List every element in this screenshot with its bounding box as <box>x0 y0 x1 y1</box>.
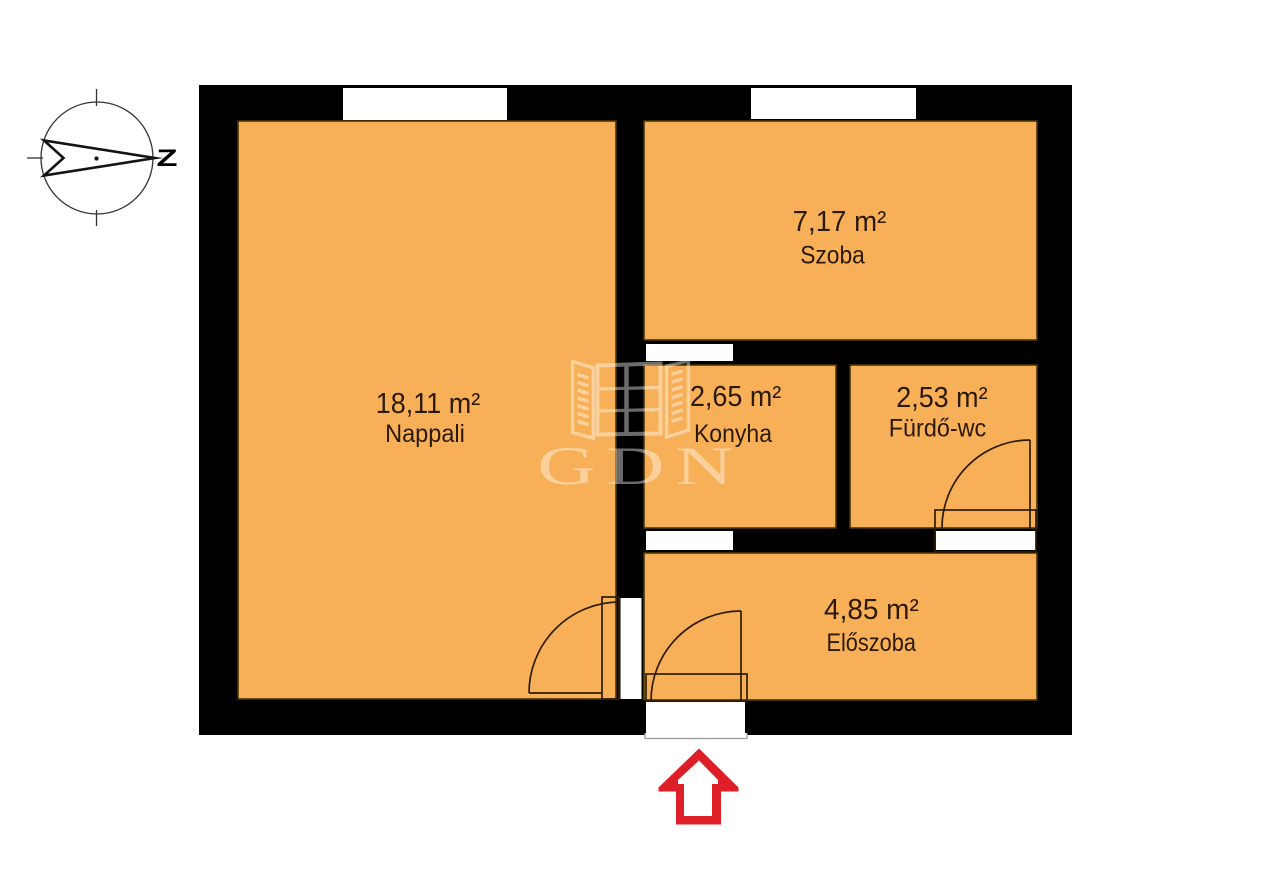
svg-text:Előszoba: Előszoba <box>826 629 916 657</box>
svg-text:4,85 m²: 4,85 m² <box>824 593 919 625</box>
svg-text:Szoba: Szoba <box>800 241 865 269</box>
svg-text:7,17 m²: 7,17 m² <box>793 205 887 237</box>
svg-text:Nappali: Nappali <box>385 420 465 448</box>
svg-text:2,53 m²: 2,53 m² <box>896 381 987 413</box>
svg-text:Z: Z <box>157 145 178 172</box>
svg-text:2,65 m²: 2,65 m² <box>690 380 781 412</box>
svg-text:Fürdő-wc: Fürdő-wc <box>889 415 987 443</box>
svg-text:18,11 m²: 18,11 m² <box>376 387 480 419</box>
svg-text:Konyha: Konyha <box>694 420 772 448</box>
